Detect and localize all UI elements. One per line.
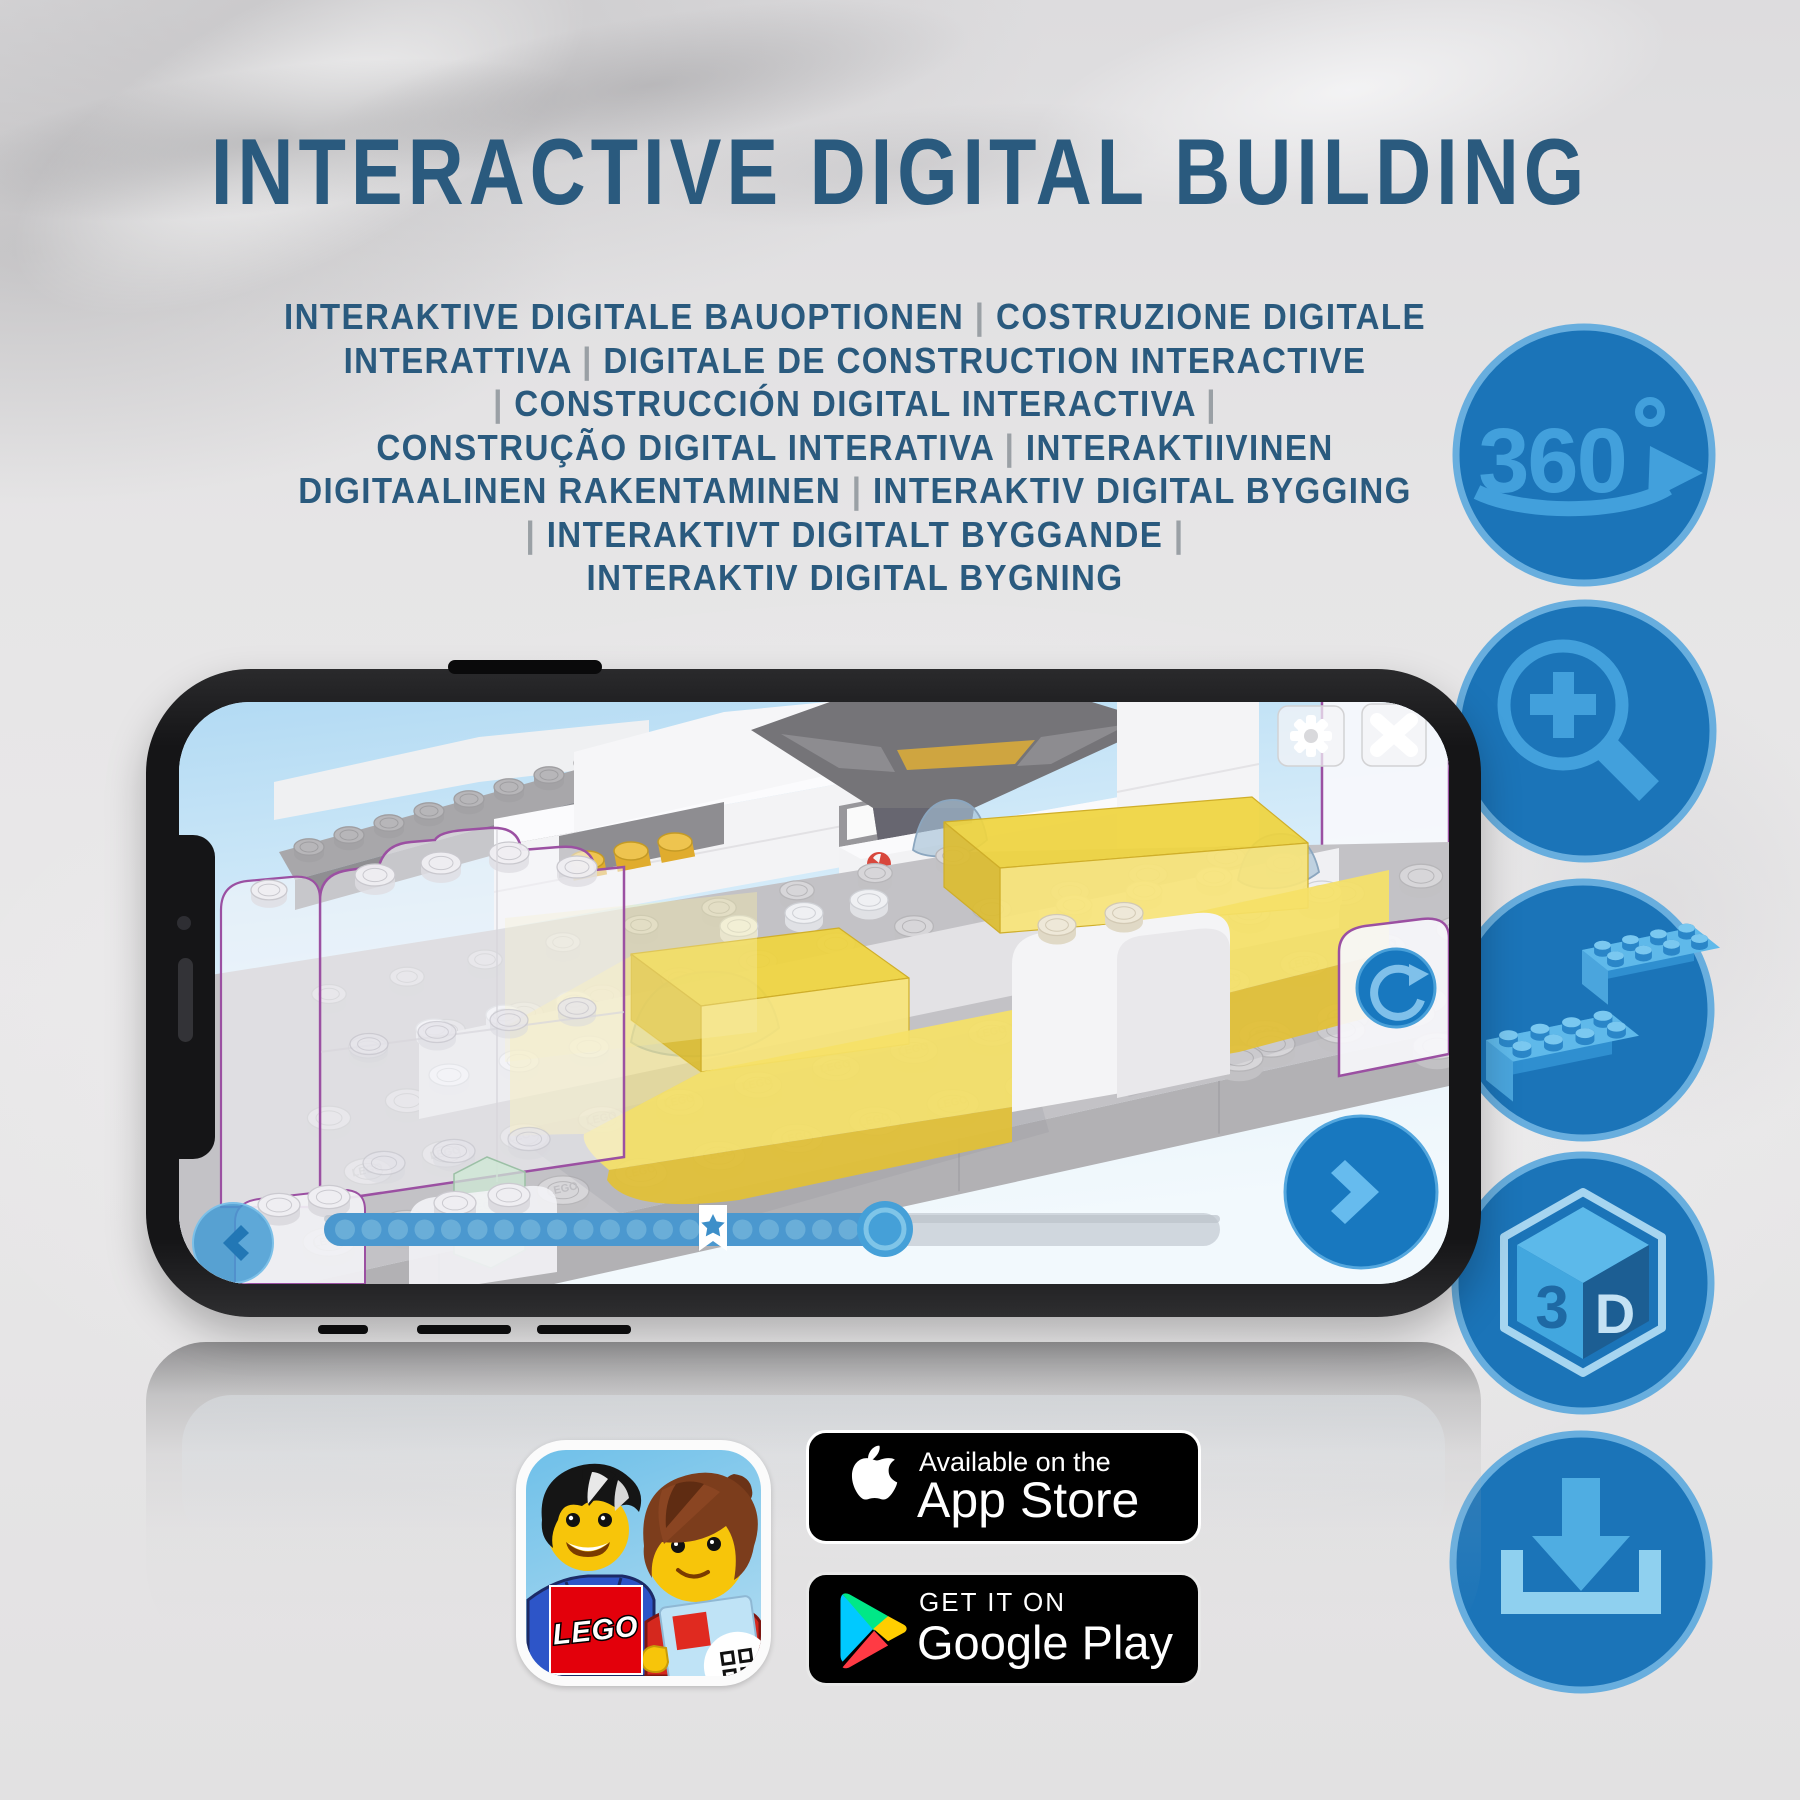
svg-text:GET IT ON: GET IT ON — [919, 1587, 1066, 1617]
svg-text:App Store: App Store — [917, 1472, 1139, 1528]
svg-text:3: 3 — [1535, 1274, 1568, 1341]
svg-text:Google Play: Google Play — [917, 1616, 1174, 1669]
svg-text:D: D — [1595, 1282, 1635, 1345]
